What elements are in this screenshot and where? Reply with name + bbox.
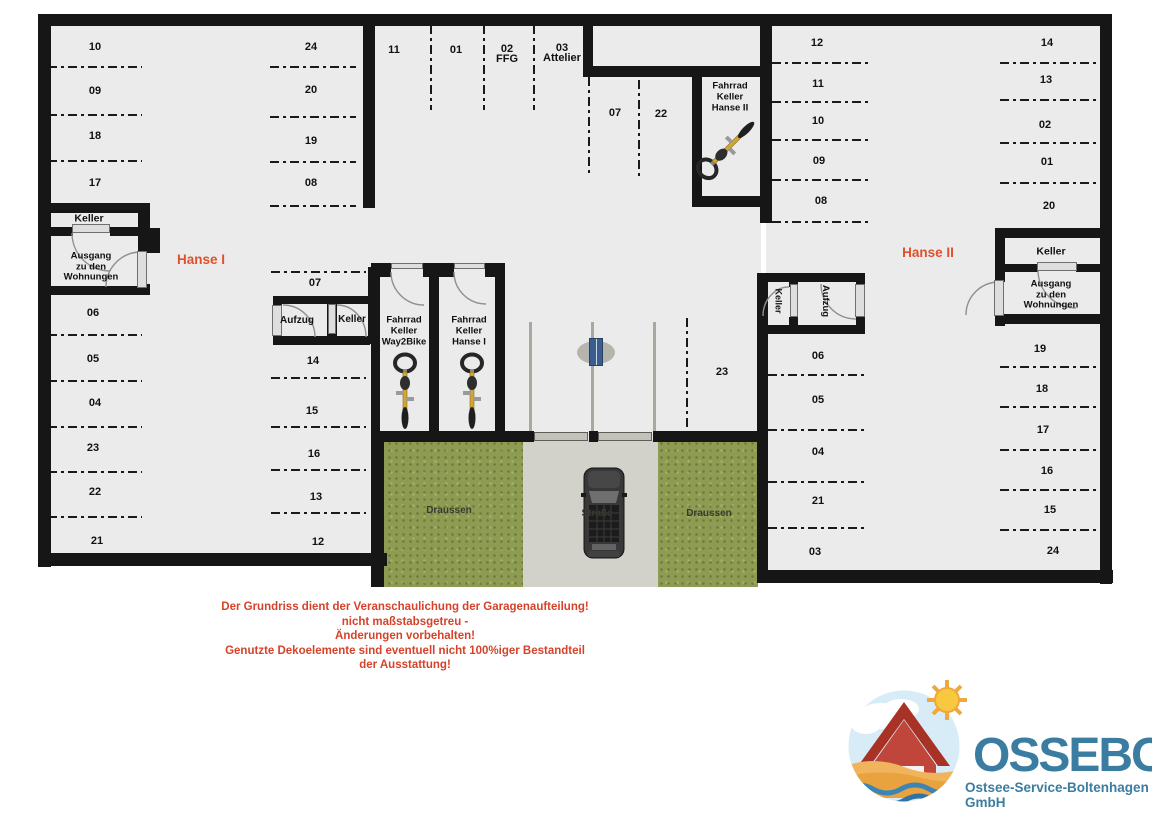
wall-segment	[856, 317, 865, 334]
wall-segment	[38, 553, 387, 566]
stall-divider-line	[271, 377, 366, 379]
stall-divider-line	[270, 205, 356, 207]
stall-20: 20	[305, 85, 317, 95]
wall-segment	[371, 438, 384, 587]
stall-18: 18	[1036, 384, 1048, 394]
disclaimer-line: der Ausstattung!	[155, 658, 655, 673]
stall-divider-line	[48, 516, 142, 518]
stall-divider-line	[48, 471, 142, 473]
wall-segment	[583, 66, 770, 77]
stall-11: 11	[388, 45, 400, 55]
stall-18: 18	[89, 131, 101, 141]
stall-divider-line	[1000, 406, 1100, 408]
door-panel	[1037, 262, 1077, 271]
stall-23: 23	[716, 367, 728, 377]
stall-divider-line	[48, 66, 142, 68]
bicycle-top-view-icon	[460, 352, 484, 430]
hanse1-label: Hanse I	[177, 253, 225, 267]
stall-divider-line	[1000, 99, 1100, 101]
stall-divider-line	[686, 318, 688, 432]
wall-segment	[757, 273, 768, 583]
wall-segment	[371, 263, 380, 440]
door-panel	[72, 224, 110, 233]
stall-divider-line	[772, 139, 872, 141]
wall-segment	[995, 264, 1038, 272]
disclaimer-line: Genutzte Dekoelemente sind eventuell nic…	[155, 644, 655, 659]
wall-segment	[653, 431, 768, 442]
wall-segment	[363, 14, 375, 208]
wall-segment	[371, 263, 391, 277]
stall-06: 06	[812, 351, 824, 361]
wall-segment	[437, 263, 454, 277]
wall-segment	[757, 325, 865, 334]
stall-divider-line	[772, 62, 872, 64]
door-panel	[328, 304, 336, 334]
stall-24: 24	[305, 42, 317, 52]
keller-hanse2-rot: Keller	[773, 288, 782, 313]
stall-03: 03	[809, 547, 821, 557]
stall-08: 08	[305, 178, 317, 188]
stall-divider-line	[768, 527, 867, 529]
wall-segment	[757, 273, 865, 282]
stall-17: 17	[89, 178, 101, 188]
stall-divider-line	[772, 179, 872, 181]
stall-divider-line	[48, 426, 142, 428]
stall-23: 23	[87, 443, 99, 453]
aufzug-hanse2-rot: Aufzug	[820, 285, 830, 317]
stall-05: 05	[812, 395, 824, 405]
page: Der Grundriss dient der Veranschaulichun…	[0, 0, 1152, 815]
gate-post	[529, 322, 532, 432]
stall-divider-line	[638, 80, 640, 176]
stall-10: 10	[812, 116, 824, 126]
stall-07: 07	[609, 108, 621, 118]
stall-21: 21	[91, 536, 103, 546]
stall-12: 12	[811, 38, 823, 48]
stall-divider-line	[533, 25, 535, 110]
stall-divider-line	[1000, 62, 1100, 64]
hanse2-label: Hanse II	[902, 246, 954, 260]
stall-divider-line	[1000, 529, 1100, 531]
wall-segment	[1076, 264, 1112, 272]
strasse: Straße	[581, 509, 612, 520]
stall-divider-line	[772, 221, 872, 223]
door-panel	[391, 263, 423, 269]
stall-22: 22	[89, 487, 101, 497]
stall-divider-line	[430, 25, 432, 110]
disclaimer-line: Änderungen vorbehalten!	[155, 629, 655, 644]
stall-19: 19	[1034, 344, 1046, 354]
stall-02: 02 FFG	[496, 44, 518, 64]
stall-16: 16	[1041, 466, 1053, 476]
stall-09: 09	[89, 86, 101, 96]
wall-segment	[757, 570, 1113, 583]
stall-divider-line	[270, 161, 356, 163]
disclaimer-line: nicht maßstabsgetreu -	[155, 615, 655, 630]
wall-segment	[38, 286, 150, 295]
stall-19: 19	[305, 136, 317, 146]
draussen-right: Draussen	[686, 509, 732, 520]
wall-segment	[38, 227, 73, 236]
aufzug-mid: Aufzug	[280, 316, 314, 327]
stall-04: 04	[812, 447, 824, 457]
sun-icon	[927, 680, 967, 720]
door-panel	[790, 284, 798, 317]
wall-segment	[995, 228, 1112, 238]
stall-divider-line	[768, 481, 867, 483]
stall-14: 14	[1041, 38, 1053, 48]
ausgang-left: Ausgang zu den Wohnungen	[64, 251, 119, 283]
wall-segment	[371, 431, 534, 442]
wall-segment	[273, 336, 370, 345]
door-panel	[137, 251, 147, 288]
entrance-gate-sign	[589, 338, 603, 366]
stall-13: 13	[310, 492, 322, 502]
bicycle-top-view-icon	[393, 352, 417, 430]
stall-divider-line	[48, 114, 142, 116]
stall-divider-line	[1000, 489, 1100, 491]
wall-segment	[692, 66, 702, 207]
stall-divider-line	[271, 271, 366, 273]
fahrrad-keller-hanse1: Fahrrad Keller Hanse I	[451, 315, 486, 348]
keller-mid: Keller	[338, 315, 366, 326]
wall-segment	[495, 263, 505, 440]
stall-divider-line	[48, 160, 142, 162]
stall-14: 14	[307, 356, 319, 366]
stall-17: 17	[1037, 425, 1049, 435]
stall-16: 16	[308, 449, 320, 459]
stall-21: 21	[812, 496, 824, 506]
wall-segment	[692, 196, 770, 207]
keller-left: Keller	[74, 213, 103, 224]
fahrrad-keller-way2bike: Fahrrad Keller Way2Bike	[382, 315, 427, 348]
stall-08: 08	[815, 196, 827, 206]
stall-24: 24	[1047, 546, 1059, 556]
wall-segment	[110, 227, 150, 236]
wall-segment	[789, 317, 798, 334]
stall-07: 07	[309, 278, 321, 288]
stall-20: 20	[1043, 201, 1055, 211]
stall-divider-line	[48, 334, 142, 336]
ossebo-logo-badge	[843, 676, 975, 808]
stall-06: 06	[87, 308, 99, 318]
wall-segment	[38, 14, 1112, 26]
stall-divider-line	[588, 77, 590, 177]
wall-segment	[429, 263, 439, 440]
keller-right: Keller	[1036, 246, 1065, 257]
wall-segment	[995, 314, 1112, 324]
wall-segment	[273, 296, 370, 304]
draussen-left: Draussen	[426, 506, 472, 517]
stall-divider-line	[772, 101, 872, 103]
door-panel	[994, 280, 1004, 316]
stall-divider-line	[1000, 449, 1100, 451]
garage-door	[598, 432, 652, 441]
stall-05: 05	[87, 354, 99, 364]
stall-divider-line	[271, 512, 366, 514]
stall-04: 04	[89, 398, 101, 408]
stall-divider-line	[271, 426, 366, 428]
stall-22: 22	[655, 109, 667, 119]
door-panel	[454, 263, 485, 269]
stall-03: 03 Attelier	[543, 43, 581, 63]
disclaimer-text: Der Grundriss dient der Veranschaulichun…	[155, 600, 655, 673]
stall-11: 11	[812, 79, 824, 89]
stall-divider-line	[768, 374, 867, 376]
stall-02: 02	[1039, 120, 1051, 130]
door-panel	[855, 284, 865, 317]
stall-01: 01	[1041, 157, 1053, 167]
stall-divider-line	[1000, 142, 1100, 144]
stall-15: 15	[1044, 505, 1056, 515]
logo-tagline: Ostsee-Service-Boltenhagen GmbH	[965, 780, 1152, 810]
logo-wordmark: OSSEBO	[973, 732, 1152, 780]
stall-10: 10	[89, 42, 101, 52]
floor-plan: Der Grundriss dient der Veranschaulichun…	[0, 0, 1152, 815]
wall-segment	[589, 431, 598, 442]
stall-13: 13	[1040, 75, 1052, 85]
gate-post	[653, 322, 656, 432]
fahrrad-keller-hanse2: Fahrrad Keller Hanse II	[712, 81, 748, 114]
stall-divider-line	[270, 116, 356, 118]
stall-divider-line	[271, 469, 366, 471]
stall-divider-line	[768, 429, 867, 431]
stall-09: 09	[813, 156, 825, 166]
stall-divider-line	[1000, 366, 1100, 368]
stall-divider-line	[48, 380, 142, 382]
wall-segment	[1100, 14, 1112, 584]
wall-segment	[760, 20, 772, 223]
company-logo: OSSEBO Ostsee-Service-Boltenhagen GmbH	[843, 672, 1152, 812]
garage-door	[534, 432, 588, 441]
stall-12: 12	[312, 537, 324, 547]
ausgang-right: Ausgang zu den Wohnungen	[1024, 279, 1079, 311]
stall-01: 01	[450, 45, 462, 55]
stall-divider-line	[483, 25, 485, 110]
stall-15: 15	[306, 406, 318, 416]
disclaimer-line: Der Grundriss dient der Veranschaulichun…	[155, 600, 655, 615]
stall-divider-line	[270, 66, 356, 68]
wall-segment	[995, 228, 1005, 282]
stall-divider-line	[1000, 182, 1100, 184]
